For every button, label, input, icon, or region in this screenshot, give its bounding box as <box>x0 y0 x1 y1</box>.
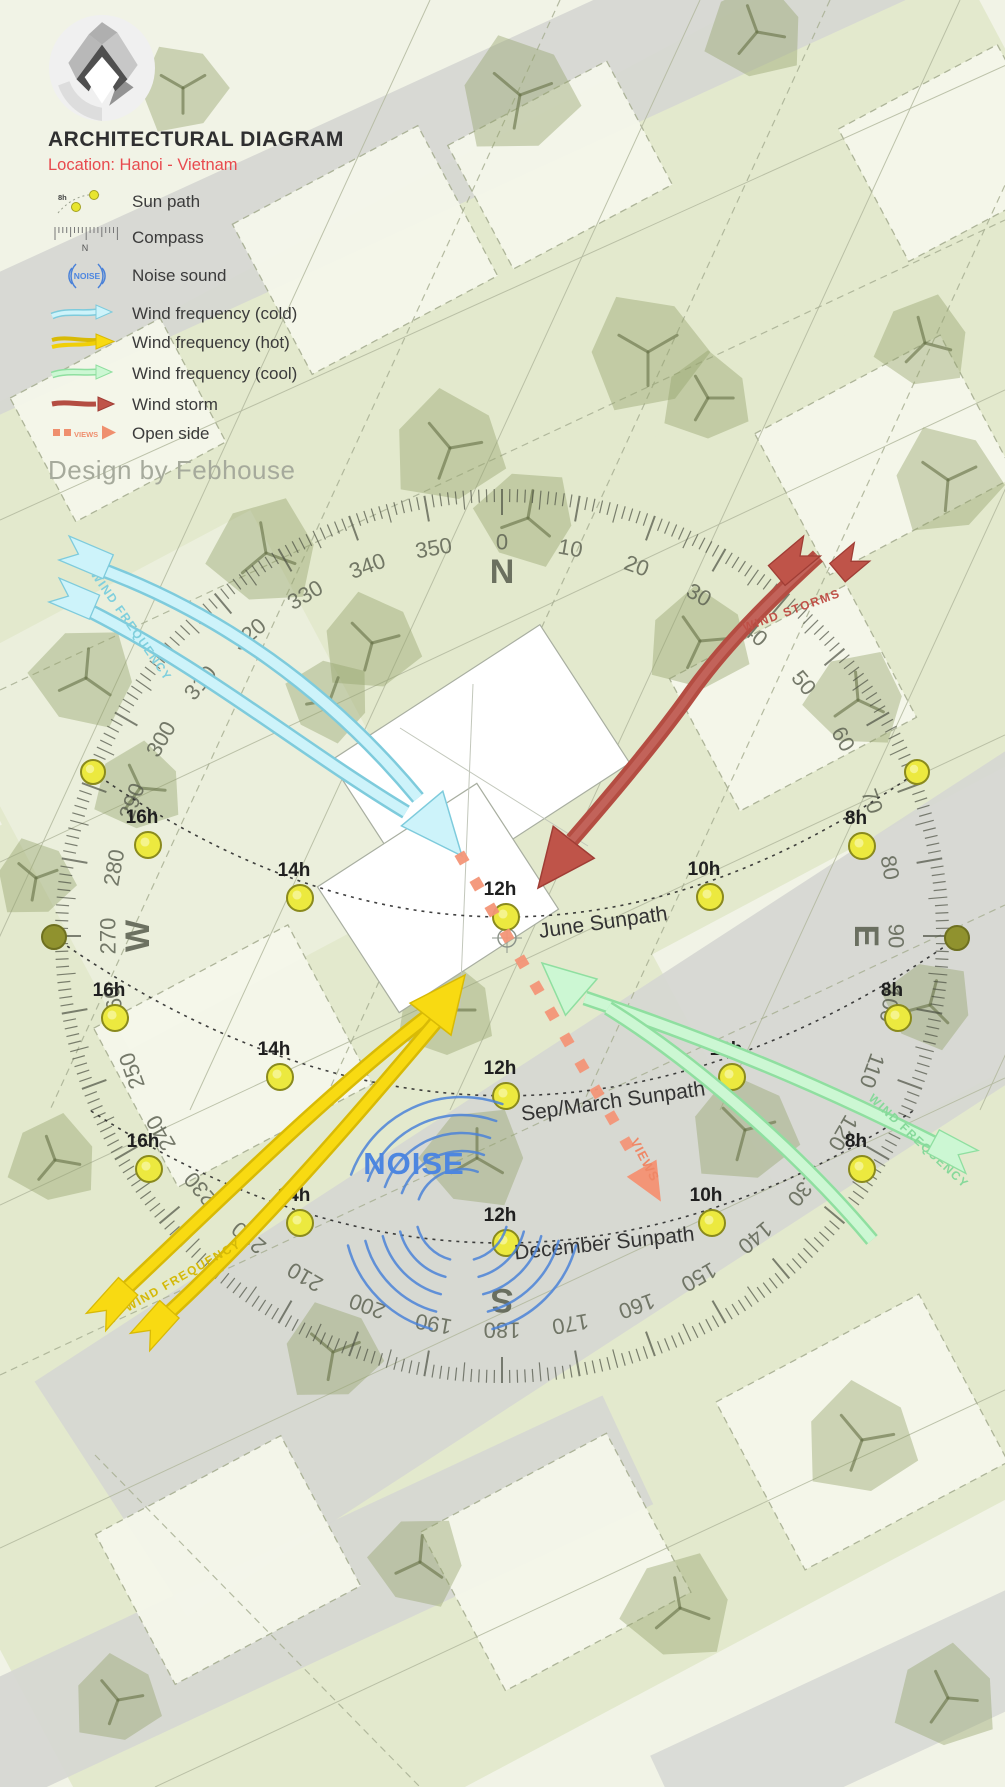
sun-highlight <box>107 1010 116 1019</box>
sunpath-endpoint-sun <box>81 760 105 784</box>
compass-tick <box>525 1369 526 1382</box>
legend-item-sun-path: 8h Sun path <box>48 189 398 215</box>
noise-icon: NOISE <box>48 262 126 290</box>
noise-mini-label: NOISE <box>74 271 101 281</box>
legend-item-noise: NOISE Noise sound <box>48 263 398 289</box>
legend-label: Wind frequency (cold) <box>132 304 297 324</box>
sun-hour-label: 16h <box>126 807 159 828</box>
compass-tick <box>56 913 69 914</box>
compass-tick <box>935 913 948 914</box>
info-panel: ARCHITECTURAL DIAGRAM Location: Hanoi - … <box>48 14 398 486</box>
credit-text: Design by Febhouse <box>48 455 398 486</box>
sun-path-icon: 8h <box>48 188 126 216</box>
compass-cardinal-W: W <box>119 919 157 952</box>
sun-hour-label: 10h <box>688 859 721 880</box>
architectural-diagram: 0102030405060708090100110120130140150160… <box>0 0 1005 1787</box>
legend-item-wind-hot: Wind frequency (hot) <box>48 330 398 356</box>
compass-degree-label: 10 <box>556 534 584 563</box>
sun-hour-label: 12h <box>484 1205 517 1226</box>
sunpath-endpoint-sun <box>905 760 929 784</box>
sun-hour-label: 12h <box>484 879 517 900</box>
wind-cold-icon <box>48 300 126 328</box>
sun-highlight <box>704 1215 713 1224</box>
compass-degree-label: 270 <box>96 918 121 955</box>
compass-degree-label: 80 <box>876 853 905 881</box>
legend-label: Open side <box>132 424 210 444</box>
compass-tick <box>525 490 526 503</box>
sun-highlight <box>910 765 918 773</box>
compass-tick <box>479 1369 480 1382</box>
sun-hour-label: 14h <box>258 1039 291 1060</box>
sun-hour-label: 8h <box>845 808 867 829</box>
legend-label: Wind storm <box>132 395 218 415</box>
legend-item-wind-storm: Wind storm <box>48 392 398 418</box>
legend-item-compass: N Compass <box>48 225 398 251</box>
sun-highlight <box>724 1069 733 1078</box>
wind-cool-icon <box>48 360 126 388</box>
studio-logo <box>48 14 156 122</box>
sun-highlight <box>86 765 94 773</box>
legend-label: Noise sound <box>132 266 227 286</box>
sun-highlight <box>854 1161 863 1170</box>
sun-hour-label: 16h <box>93 980 126 1001</box>
legend-item-open-side: VIEWS Open side <box>48 421 398 447</box>
legend-item-wind-cold: Wind frequency (cold) <box>48 301 398 327</box>
compass-tick <box>935 959 948 960</box>
compass-n-mini-label: N <box>82 243 89 252</box>
wind-storm-icon <box>48 391 126 419</box>
page-title: ARCHITECTURAL DIAGRAM <box>48 128 398 152</box>
legend-label: Compass <box>132 228 204 248</box>
compass-cardinal-E: E <box>847 925 885 948</box>
sun-highlight <box>272 1069 281 1078</box>
compass-degree-label: 90 <box>884 924 909 948</box>
sun-highlight <box>141 1161 150 1170</box>
compass-cardinal-N: N <box>490 553 515 591</box>
sun-highlight <box>498 909 507 918</box>
wind-hot-icon <box>48 329 126 357</box>
views-mini-label: VIEWS <box>74 430 98 439</box>
compass-icon: N <box>48 224 126 252</box>
legend-label: Wind frequency (cool) <box>132 364 297 384</box>
sun-hour-label: 8h <box>881 980 903 1001</box>
sun-hour-label: 16h <box>127 1131 160 1152</box>
sunpath-endpoint-sun <box>42 925 66 949</box>
sun-hour-label: 8h <box>845 1131 867 1152</box>
sun-hour-mini-label: 8h <box>58 193 67 202</box>
sun-highlight <box>702 889 711 898</box>
legend: 8h Sun path N Compass NOISE <box>48 189 398 447</box>
sun-hour-label: 10h <box>690 1185 723 1206</box>
compass-tick <box>56 959 69 960</box>
legend-label: Sun path <box>132 192 200 212</box>
sunpath-endpoint-sun <box>945 926 969 950</box>
compass-degree-label: 0 <box>496 530 508 555</box>
legend-item-wind-cool: Wind frequency (cool) <box>48 361 398 387</box>
sun-highlight <box>890 1010 899 1019</box>
sun-highlight <box>292 1215 301 1224</box>
legend-label: Wind frequency (hot) <box>132 333 290 353</box>
sun-highlight <box>498 1088 507 1097</box>
open-side-icon: VIEWS <box>48 420 126 448</box>
compass-tick <box>479 490 480 503</box>
sun-highlight <box>140 837 149 846</box>
location-subtitle: Location: Hanoi - Vietnam <box>48 156 398 175</box>
noise-label: NOISE <box>363 1146 464 1181</box>
sun-highlight <box>292 890 301 899</box>
sun-hour-label: 14h <box>278 860 311 881</box>
sun-highlight <box>854 838 863 847</box>
sun-hour-label: 12h <box>484 1058 517 1079</box>
